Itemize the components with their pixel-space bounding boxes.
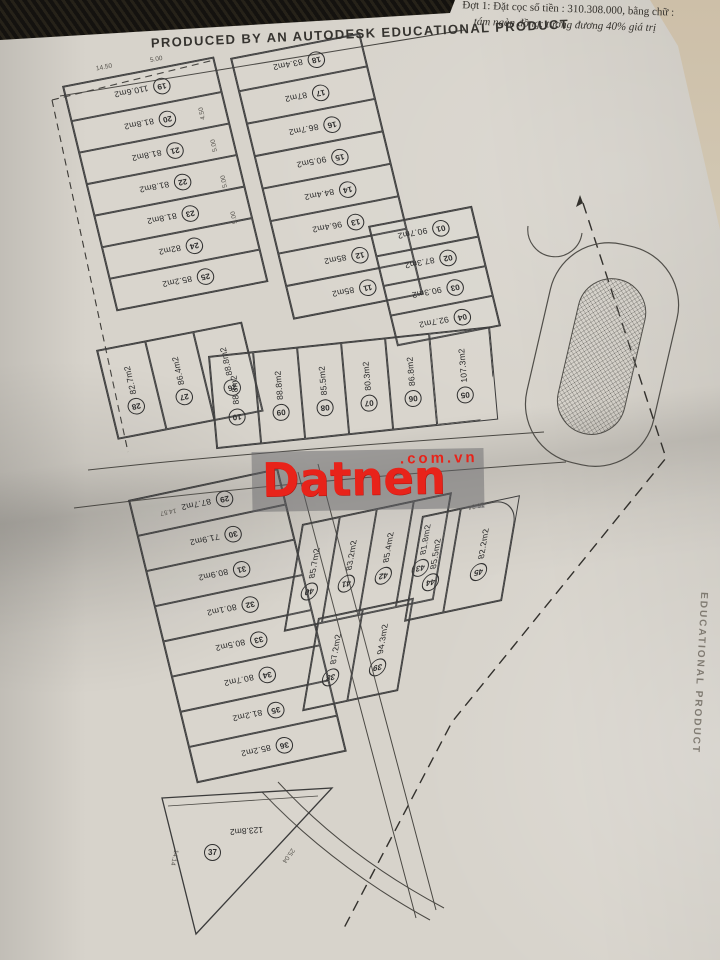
plot-area-label: 87.7m2 — [181, 497, 213, 513]
plot-number: 18 — [306, 49, 327, 69]
watermark-suffix: .com.vn — [400, 449, 478, 467]
plot-area-label: 96.4m2 — [311, 219, 343, 234]
plot-area-label: 81.8m2 — [131, 148, 163, 163]
plot-area-label: 90.7m2 — [397, 226, 429, 241]
plot-number: 44 — [420, 571, 440, 592]
plot-number: 28 — [125, 396, 146, 416]
datnen-watermark: Datnen .com.vn — [251, 448, 484, 512]
plot-number: 21 — [165, 141, 186, 161]
plot-area-label: 92.7m2 — [418, 315, 450, 330]
plot-area-label: 88.8m2 — [272, 370, 285, 400]
plot-area-label: 83.2m2 — [344, 539, 359, 572]
plot-area-label: 81.8m2 — [146, 211, 178, 226]
plot-07: 0780.3m2 — [341, 338, 393, 434]
plot-number: 12 — [349, 245, 370, 265]
plot-05: 05107.3m2 — [429, 327, 497, 424]
plot-number: 11 — [357, 277, 378, 297]
plot-number: 24 — [184, 236, 205, 256]
plot-number: 10 — [227, 407, 245, 426]
plot-number: 17 — [310, 83, 331, 103]
plot-number: 41 — [336, 573, 356, 594]
plot-number: 05 — [456, 386, 474, 405]
plot-number: 13 — [345, 212, 366, 232]
plot-number: 29 — [214, 489, 235, 509]
plot-number: 42 — [373, 565, 393, 586]
plot-number: 34 — [257, 665, 278, 685]
plot-number: 20 — [157, 109, 178, 129]
plot-area-label: 85.4m2 — [381, 531, 396, 564]
plot-area-label: 86.8m2 — [404, 356, 417, 386]
road-loop — [513, 231, 690, 479]
plot-area-label: 85.7m2 — [307, 547, 322, 580]
plot-area-label: 83.4m2 — [272, 57, 304, 72]
plot-number: 33 — [248, 630, 269, 650]
plot-area-label: 81.8m2 — [123, 117, 155, 132]
plot-area-label: 85m2 — [331, 285, 355, 299]
plot-area-label: 88.8m2 — [228, 375, 241, 405]
plot-area-label: 81.8m2 — [139, 180, 171, 195]
plot-area-label: 80.5m2 — [215, 638, 247, 654]
plot-area-label: 85.5m2 — [316, 365, 329, 395]
plot-area-label: 71.9m2 — [189, 532, 221, 548]
plot-number: 23 — [180, 204, 201, 224]
plot-number: 07 — [359, 394, 377, 413]
hatched-median-island — [551, 272, 653, 441]
plot-area-label: 87.2m2 — [327, 633, 342, 666]
plot-area-label: 110.6m2 — [113, 83, 149, 99]
plot-area-label: 94.3m2 — [374, 623, 389, 656]
plot-number: 16 — [322, 114, 343, 134]
plot-number: 40 — [299, 581, 319, 602]
plot-number: 03 — [445, 278, 466, 298]
plot-number: 45 — [468, 561, 488, 582]
plot-number: 01 — [431, 219, 452, 239]
plot-09: 0988.8m2 — [253, 348, 305, 444]
plot-area-label: 87.3m2 — [404, 256, 436, 271]
plot-area-label: 85.2m2 — [240, 743, 272, 759]
plot-number: 31 — [231, 559, 252, 579]
plot-area-label: 84.4m2 — [304, 187, 336, 202]
plot-number: 32 — [240, 595, 261, 615]
plot-10: 1088.8m2 — [209, 352, 261, 448]
plot-area-label: 86.4m2 — [169, 356, 186, 386]
photographed-land-plot-map: 19110.6m22081.8m22181.8m22281.8m22381.8m… — [0, 0, 720, 960]
plot-area-label: 80.3m2 — [360, 361, 373, 391]
plot-area-label: 107.3m2 — [456, 348, 469, 383]
plot-number: 22 — [172, 172, 193, 192]
plot-number: 19 — [151, 76, 172, 96]
plot-number: 15 — [330, 147, 351, 167]
plot-area-label: 85.2m2 — [162, 274, 194, 289]
plot-number: 14 — [337, 179, 358, 199]
plot-area-label: 82m2 — [158, 244, 182, 258]
culdesac-arc — [528, 226, 582, 257]
plot-area-label: 87m2 — [284, 90, 308, 104]
plot-area-label: 85m2 — [323, 253, 347, 267]
plot-number: 04 — [452, 307, 473, 327]
plot-06: 0686.8m2 — [385, 334, 437, 430]
plot-area-label: 81.2m2 — [232, 708, 264, 724]
boundary-arrow-icon — [576, 195, 583, 207]
plot-area-label: 82.2m2 — [475, 527, 490, 560]
plot-area-label: 90.3m2 — [411, 285, 443, 300]
plot-area-label: 82.7m2 — [121, 365, 138, 395]
plot-area-label: 80.9m2 — [198, 567, 230, 583]
plot-number: 30 — [223, 524, 244, 544]
plot-area-label: 85.5m2 — [427, 537, 442, 570]
plot-area-label: 80.1m2 — [206, 603, 238, 619]
plot-number: 09 — [271, 403, 289, 422]
plot-number: 25 — [195, 267, 216, 287]
plot-number: 35 — [266, 700, 287, 720]
plot-08: 0885.5m2 — [297, 343, 349, 439]
plot-area-label: 86.7m2 — [288, 122, 320, 137]
plot-number: 37 — [204, 844, 221, 861]
plot-37-outline — [162, 788, 332, 934]
plot-number: 38 — [320, 667, 340, 688]
plot-number: 27 — [173, 387, 194, 407]
plot-number: 39 — [367, 657, 387, 678]
plot-number: 02 — [438, 248, 459, 268]
plot-area-label: 90.5m2 — [296, 154, 328, 169]
plot-number: 08 — [315, 398, 333, 417]
plot-number: 36 — [274, 735, 295, 755]
plot-number: 06 — [403, 389, 421, 408]
plot-area-label: 80.7m2 — [223, 673, 255, 689]
